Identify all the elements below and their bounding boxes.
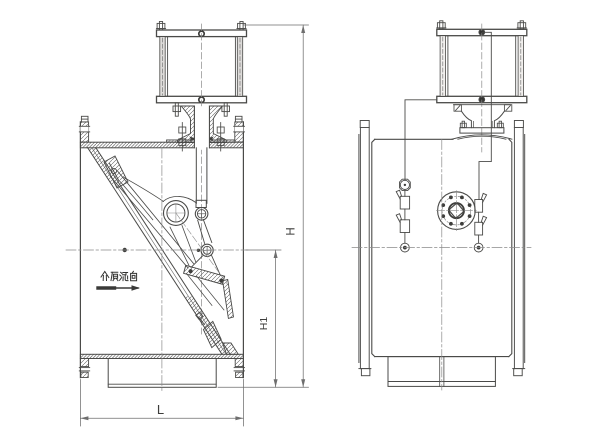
svg-text:L: L: [157, 402, 164, 417]
svg-text:H1: H1: [258, 317, 270, 331]
svg-text:H: H: [286, 227, 298, 235]
